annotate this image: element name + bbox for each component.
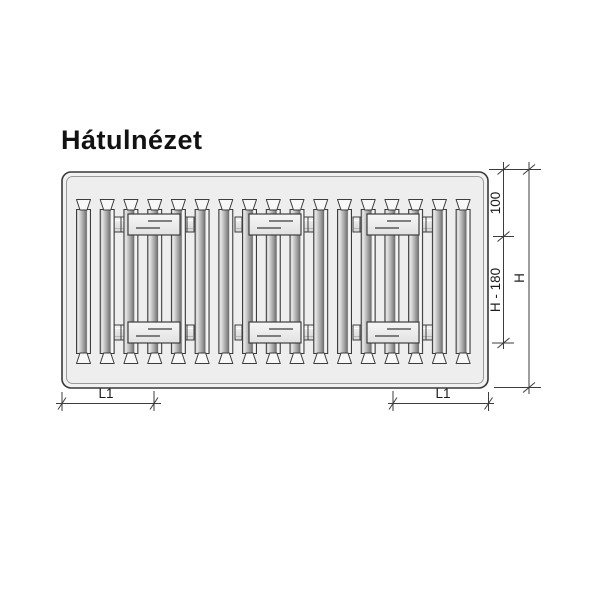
dim-label-l1-left: L1 bbox=[98, 386, 113, 401]
fin bbox=[219, 200, 233, 364]
fin bbox=[432, 200, 446, 364]
fin bbox=[314, 200, 328, 364]
plate-lower-right bbox=[367, 322, 419, 343]
plate-lower-left bbox=[128, 322, 180, 343]
plate-upper-right bbox=[367, 214, 419, 235]
dim-label-l1-right: L1 bbox=[435, 386, 450, 401]
height-dimensions: 100 H - 180 H bbox=[488, 162, 541, 394]
plate-upper-center bbox=[249, 214, 301, 235]
radiator-rear-view-diagram: Hátulnézet bbox=[0, 0, 600, 600]
dim-label-top-offset: 100 bbox=[488, 192, 503, 215]
fin bbox=[195, 200, 209, 364]
fin bbox=[338, 200, 352, 364]
plate-lower-center bbox=[249, 322, 301, 343]
plate-upper-left bbox=[128, 214, 180, 235]
bracket-offset-dimensions: L1 L1 bbox=[56, 386, 494, 411]
fin bbox=[100, 200, 114, 364]
fin bbox=[456, 200, 470, 364]
dim-label-middle-span: H - 180 bbox=[488, 268, 503, 312]
fin bbox=[77, 200, 91, 364]
radiator-rear-view-page: Hátulnézet bbox=[0, 0, 600, 600]
drawing-title: Hátulnézet bbox=[61, 125, 203, 155]
dim-label-total-height: H bbox=[512, 273, 527, 283]
